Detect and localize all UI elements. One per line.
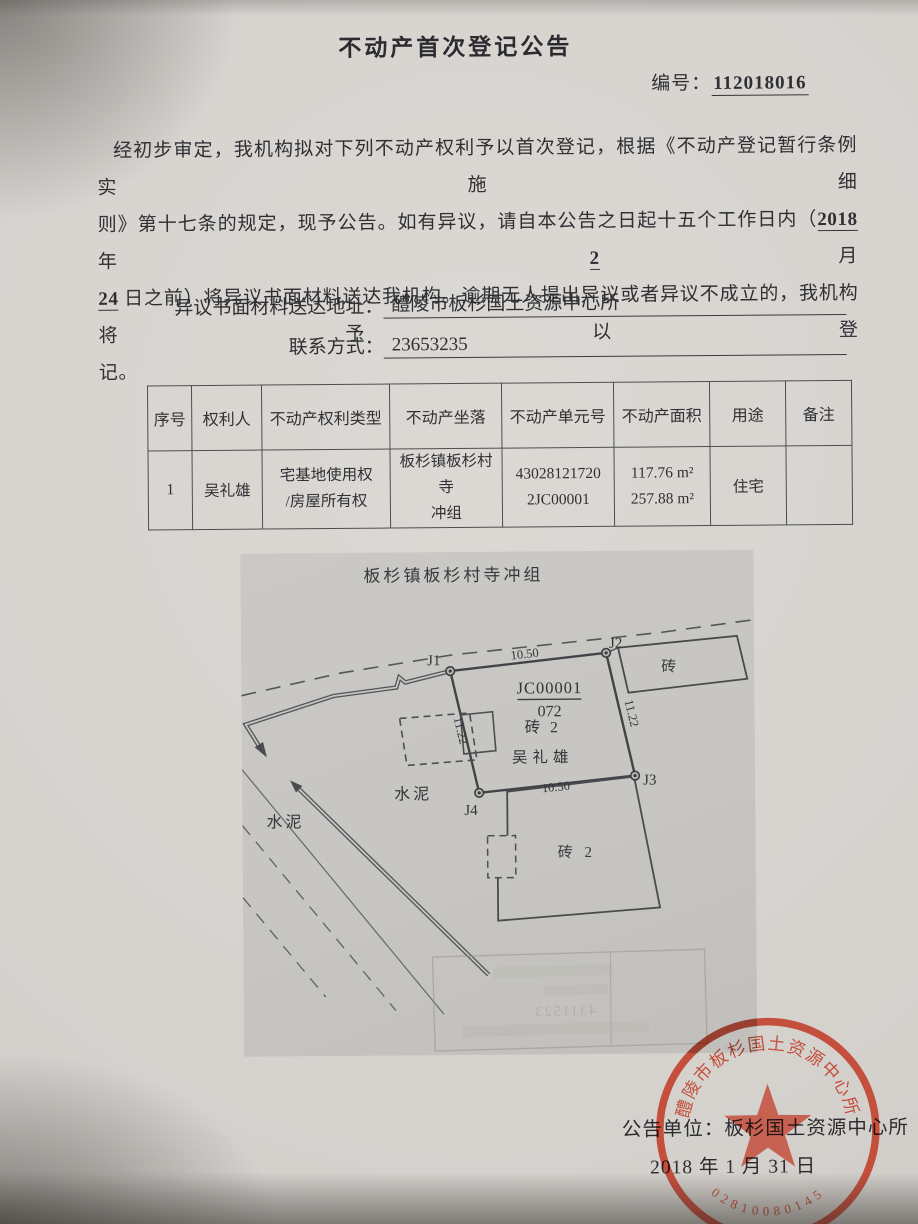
label-j3: J3 [643, 772, 656, 788]
label-j4: J4 [464, 803, 478, 819]
cell-unit-no: 43028121720 2JC00001 [502, 447, 615, 527]
bleed-smudge-1 [493, 964, 613, 978]
point-j2-dot [604, 651, 607, 654]
cell-area: 117.76 m² 257.88 m² [614, 447, 711, 527]
year-underlined: 2018 [817, 209, 858, 231]
parcel-subnumber: 072 [537, 703, 561, 720]
header-right-type: 不动产权利类型 [261, 384, 390, 450]
official-seal: 醴陵市板杉国土资源中心所 02810080145 [627, 988, 909, 1224]
surface-label-left: 水泥 [266, 813, 304, 831]
objection-address-row: 异议书面材料送达地址： 醴陵市板杉国土资源中心所 [98, 285, 846, 321]
line2-sep2: 月 [600, 246, 858, 269]
contact-label: 联系方式： [99, 332, 384, 361]
paragraph-line-2: 则》第十七条的规定，现予公告。如有异议，请自本公告之日起十五个工作日内（2018… [98, 201, 859, 281]
paragraph-line-1: 经初步审定，我机构拟对下列不动产权利予以首次登记，根据《不动产登记暂行条例实施细 [97, 127, 858, 207]
cell-remark [786, 445, 853, 525]
surface-label-center: 水泥 [394, 785, 432, 803]
road-boundary-dashed [241, 620, 755, 696]
line2-sep1: 年 [98, 248, 590, 273]
east-building-label: 砖 [661, 658, 676, 675]
cell-location: 板杉镇板杉村寺 冲组 [390, 448, 503, 528]
header-seq: 序号 [147, 386, 192, 451]
label-j2: J2 [609, 636, 622, 652]
label-j1: J1 [427, 653, 440, 669]
road-edge-dashed-2 [243, 897, 326, 998]
line2-text: 则》第十七条的规定，现予公告。如有异议，请自本公告之日起十五个工作日内（ [98, 209, 818, 236]
area-line1: 117.76 m² [617, 460, 708, 487]
cell-use: 住宅 [710, 446, 787, 526]
site-plan-title: 板杉镇板杉村寺冲组 [363, 565, 543, 585]
photo-page: 不动产首次登记公告 编号：112018016 经初步审定，我机构拟对下列不动产权… [0, 0, 918, 1224]
south-building-dashed-notch [488, 836, 516, 878]
point-j1-dot [449, 669, 452, 672]
wall-line-inner [245, 671, 451, 751]
parcel-owner: 吴礼雄 [512, 748, 574, 766]
month-underlined: 2 [590, 248, 600, 270]
fraction-line [517, 699, 581, 700]
road-edge-dashed-1 [242, 825, 395, 1012]
site-plan-drawing: 板杉镇板杉村寺冲组 [240, 550, 757, 1057]
header-area: 不动产面积 [613, 382, 710, 448]
dim-right: 11.22 [622, 698, 642, 728]
road-edge-solid [242, 768, 444, 1016]
seal-serial-textpath: 02810080145 [709, 1184, 829, 1219]
bleed-smudge-2 [543, 984, 607, 996]
east-building [618, 636, 747, 693]
doc-number: 编号：112018016 [651, 67, 809, 95]
area-line2: 257.88 m² [617, 486, 708, 513]
bleed-mirrored-text: 4311523 [533, 1003, 596, 1020]
right-type-line2: /房屋所有权 [265, 489, 388, 516]
contact-value: 23653235 [384, 331, 847, 359]
dim-left: 11.22 [451, 715, 471, 745]
right-type-line1: 宅基地使用权 [265, 463, 388, 490]
parcel-number: JC00001 [516, 678, 582, 698]
seal-serial-text: 02810080145 [709, 1184, 829, 1219]
announcement-title: 不动产首次登记公告 [0, 24, 914, 65]
header-use: 用途 [709, 381, 786, 447]
header-unit-no: 不动产单元号 [501, 382, 614, 448]
south-building-label: 砖 2 [558, 844, 596, 861]
site-plan: 板杉镇板杉村寺冲组 [240, 550, 757, 1057]
path-line-inner [294, 783, 489, 977]
contact-row: 联系方式： 23653235 [99, 325, 847, 361]
address-value: 醴陵市板杉国土资源中心所 [383, 286, 846, 319]
table-header-row: 序号 权利人 不动产权利类型 不动产坐落 不动产单元号 不动产面积 用途 备注 [147, 380, 851, 451]
point-j3-dot [633, 774, 636, 777]
cell-holder: 吴礼雄 [192, 450, 263, 530]
doc-number-value: 112018016 [711, 72, 809, 96]
header-location: 不动产坐落 [389, 383, 502, 449]
table-row: 1 吴礼雄 宅基地使用权 /房屋所有权 板杉镇板杉村寺 冲组 430281217… [148, 445, 853, 530]
cell-seq: 1 [148, 451, 193, 530]
cell-right-type: 宅基地使用权 /房屋所有权 [262, 449, 391, 529]
dim-bottom: 10.50 [541, 779, 570, 796]
registration-table: 序号 权利人 不动产权利类型 不动产坐落 不动产单元号 不动产面积 用途 备注 … [147, 380, 853, 531]
location-line2: 冲组 [393, 501, 500, 528]
seal-star-icon [724, 1083, 812, 1167]
unit-no-line2: 2JC00001 [505, 487, 612, 514]
unit-no-line1: 43028121720 [505, 461, 612, 488]
point-j4-dot [478, 791, 481, 794]
header-holder: 权利人 [191, 385, 262, 451]
header-remark: 备注 [785, 380, 852, 446]
doc-number-label: 编号： [651, 73, 711, 94]
location-line1: 板杉镇板杉村寺 [392, 449, 499, 502]
bleed-smudge-3 [463, 1021, 649, 1037]
wall-line-outer [245, 671, 451, 751]
document-content: 不动产首次登记公告 编号：112018016 经初步审定，我机构拟对下列不动产权… [0, 0, 918, 1224]
address-label: 异议书面材料送达地址： [98, 292, 383, 321]
parcel-material: 砖 2 [525, 718, 561, 736]
